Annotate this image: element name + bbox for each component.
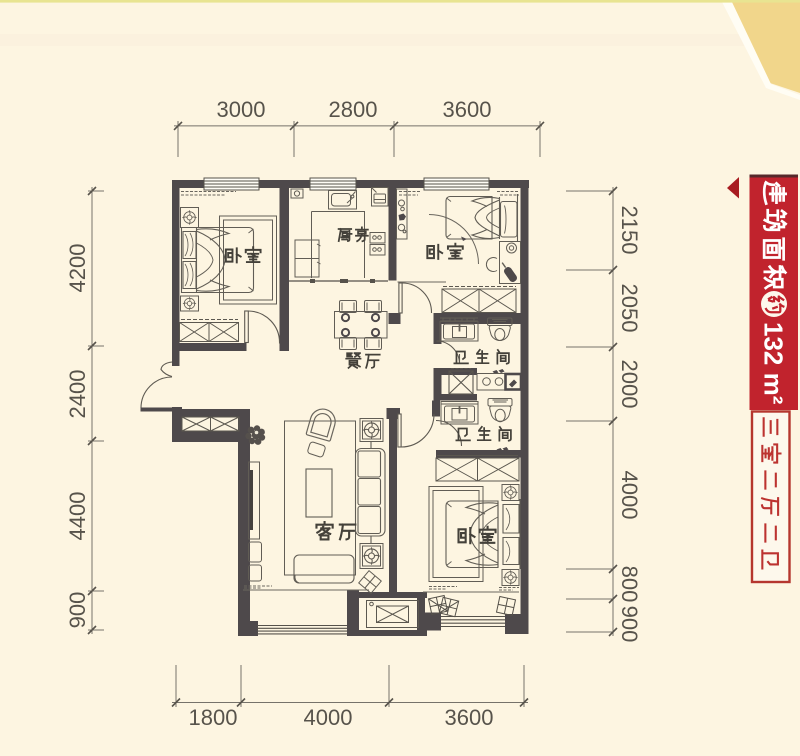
svg-text:3000: 3000 [217,97,266,122]
svg-text:2000: 2000 [617,360,642,409]
svg-text:4000: 4000 [304,705,353,730]
svg-text:4000: 4000 [617,471,642,520]
svg-text:800: 800 [617,566,642,603]
svg-text:4400: 4400 [65,492,90,541]
svg-text:3600: 3600 [445,705,494,730]
svg-text:2400: 2400 [65,370,90,419]
svg-text:2150: 2150 [617,206,642,255]
svg-text:3600: 3600 [443,97,492,122]
svg-text:900: 900 [65,592,90,629]
svg-text:132 m²: 132 m² [759,322,789,405]
svg-text:2800: 2800 [329,97,378,122]
svg-text:900: 900 [617,606,642,643]
svg-text:4200: 4200 [65,244,90,293]
svg-text:2050: 2050 [617,284,642,333]
svg-text:1800: 1800 [189,705,238,730]
